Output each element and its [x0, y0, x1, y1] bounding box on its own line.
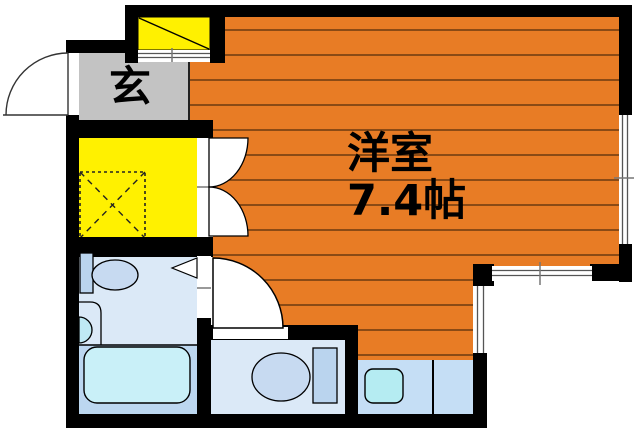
toilet-door-threshold — [213, 327, 288, 339]
wall-bottom — [66, 414, 487, 428]
room-size-label: 7.4帖 — [347, 176, 466, 226]
wall-bottom-right — [590, 264, 632, 281]
wall-cabinet-left — [125, 5, 138, 63]
closet-floor — [79, 135, 197, 238]
wall-toilet-right — [345, 338, 358, 418]
wall-left — [66, 113, 79, 428]
closet-door-frame — [197, 138, 209, 236]
wall-washroom-right — [197, 318, 211, 418]
entrance-label: 玄 — [109, 62, 151, 111]
bathtub — [84, 347, 190, 403]
wall-top — [125, 5, 632, 17]
window-side-lower — [474, 286, 487, 353]
wall-right-upper — [619, 5, 632, 117]
room-name-label: 洋室 — [347, 129, 433, 179]
entrance-door-arc — [3, 53, 68, 115]
wall-window-corner — [473, 264, 494, 286]
entrance-window — [138, 48, 210, 62]
wall-cabinet-right — [210, 5, 225, 63]
wall-genkan-closet — [66, 120, 213, 138]
washroom-door-opening — [197, 256, 211, 318]
kitchen-sink — [365, 369, 403, 403]
floor-plan: 玄 洋室 7.4帖 — [0, 0, 640, 432]
